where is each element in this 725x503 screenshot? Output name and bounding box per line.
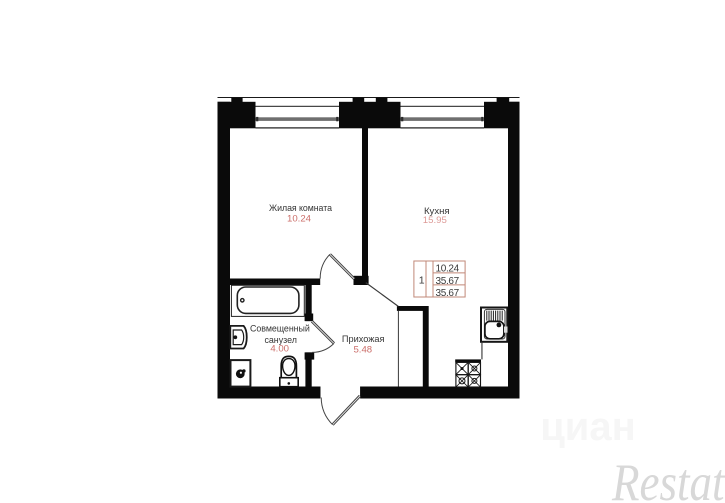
svg-text:1: 1 — [419, 275, 425, 287]
svg-text:4.00: 4.00 — [270, 343, 289, 354]
svg-text:циан: циан — [540, 405, 636, 449]
svg-text:Restate: Restate — [611, 453, 725, 503]
svg-text:Совмещенный: Совмещенный — [250, 323, 310, 333]
svg-text:5.48: 5.48 — [353, 344, 372, 355]
svg-text:35.67: 35.67 — [436, 276, 460, 287]
svg-text:10.24: 10.24 — [436, 264, 460, 275]
svg-text:10.24: 10.24 — [287, 214, 312, 225]
svg-text:35.67: 35.67 — [436, 288, 460, 299]
svg-text:Прихожая: Прихожая — [342, 334, 385, 344]
svg-text:Жилая комната: Жилая комната — [269, 203, 332, 213]
svg-text:15.95: 15.95 — [423, 215, 447, 226]
